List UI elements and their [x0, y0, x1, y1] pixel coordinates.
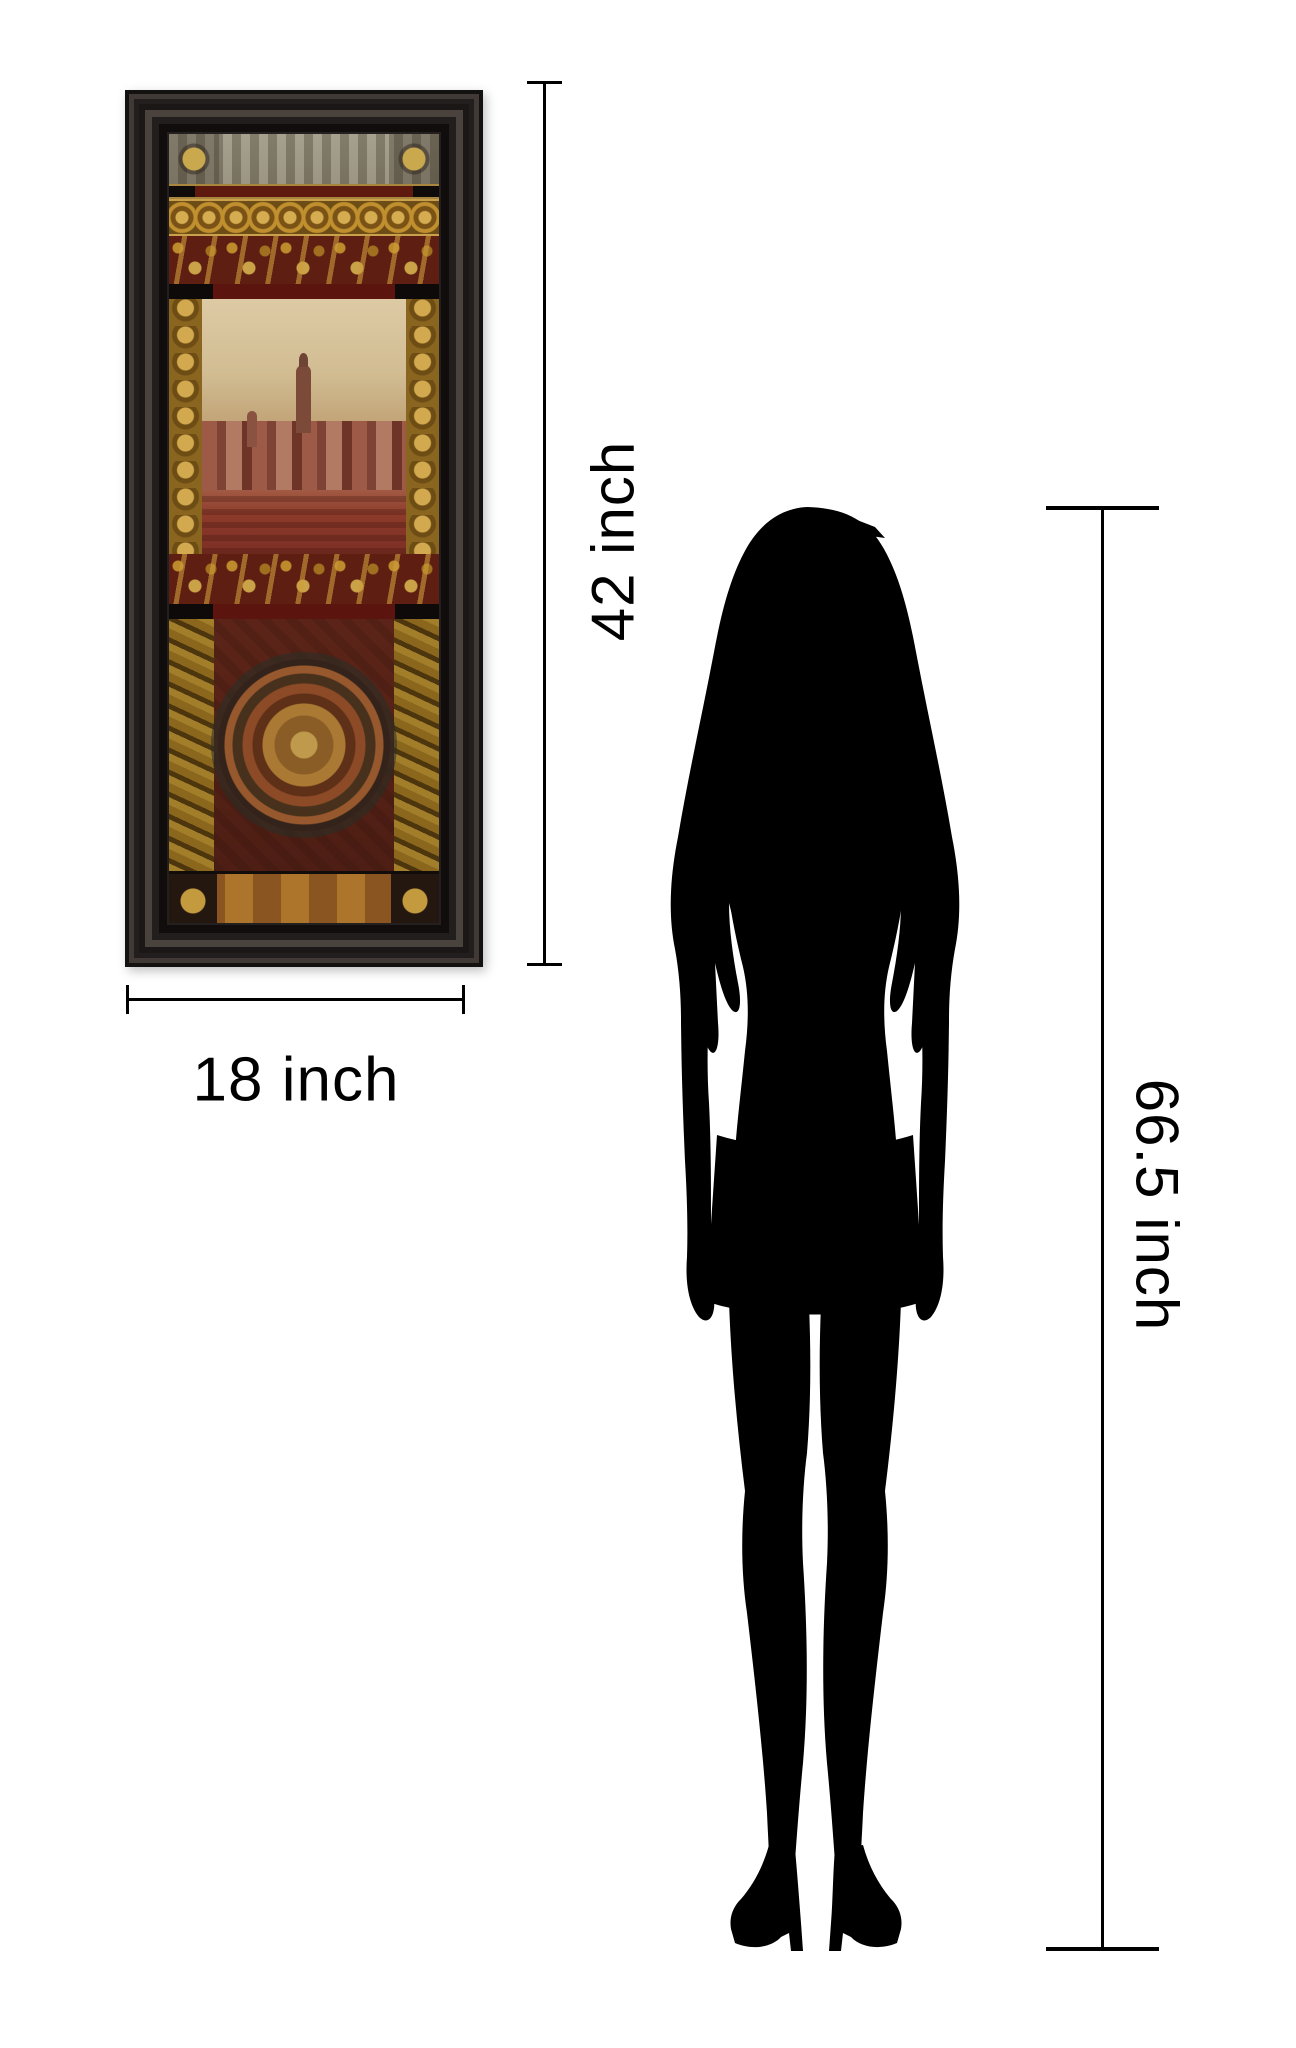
artwork-height-bottom-cap: [527, 963, 562, 966]
artwork-silver-band: [169, 134, 439, 184]
size-comparison-diagram: 42 inch 18 inch: [0, 0, 1296, 2048]
artwork-print: [169, 134, 439, 923]
artwork-gold-border-right: [406, 299, 439, 554]
artwork-red-band: [169, 184, 439, 199]
artwork-gold-border-left: [169, 299, 202, 554]
artwork-separator-band-2: [169, 604, 439, 619]
silhouette-right-leg: [820, 1301, 901, 1861]
painting-foreground: [202, 490, 406, 554]
framed-artwork: [125, 90, 483, 967]
artwork-scrollwork-band-top: [169, 236, 439, 284]
silhouette-left-leg: [729, 1301, 810, 1861]
artwork-width-dimension-line: [126, 998, 465, 1001]
artwork-bottom-band: [169, 871, 439, 923]
silhouette-skirt: [707, 1135, 923, 1315]
person-height-top-cap: [1046, 506, 1159, 510]
painting-bell-tower: [296, 365, 311, 433]
person-height-dimension-line: [1101, 508, 1104, 1951]
cityscape-painting: [202, 299, 406, 554]
silhouette-right-shoe: [829, 1845, 902, 1951]
artwork-height-dimension-line: [543, 83, 546, 966]
artwork-height-top-cap: [527, 81, 562, 84]
person-height-bottom-cap: [1046, 1947, 1159, 1951]
person-height-label: 66.5 inch: [1123, 1079, 1192, 1332]
artwork-foliate-panel-left: [169, 619, 214, 871]
artwork-cityscape-panel: [169, 299, 439, 554]
silhouette-left-shoe: [730, 1845, 803, 1951]
artwork-scrollwork-band-bottom: [169, 554, 439, 604]
artwork-width-left-tick: [126, 985, 129, 1014]
artwork-gold-guilloche-band: [169, 199, 439, 236]
medallion-square: [214, 619, 394, 871]
artwork-width-right-tick: [462, 985, 465, 1014]
medallion-rosette: [218, 659, 390, 831]
artwork-medallion-panel: [169, 619, 439, 871]
woman-silhouette: [625, 505, 1005, 1955]
painting-small-tower: [247, 411, 257, 447]
artwork-width-label: 18 inch: [193, 1045, 400, 1116]
artwork-separator-band: [169, 284, 439, 299]
artwork-foliate-panel-right: [394, 619, 439, 871]
